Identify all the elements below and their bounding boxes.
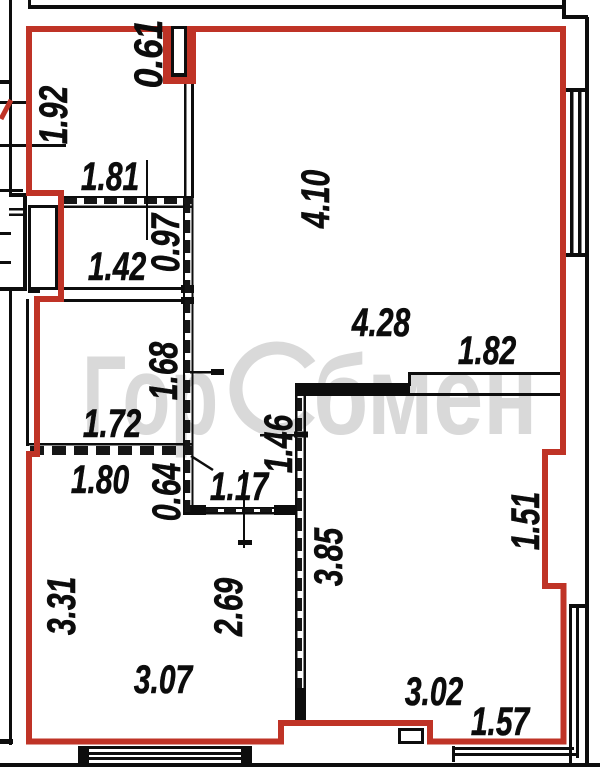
svg-text:2.69: 2.69 — [207, 578, 251, 638]
svg-text:1.17: 1.17 — [210, 465, 270, 509]
svg-text:4.10: 4.10 — [294, 170, 338, 230]
svg-text:1.72: 1.72 — [83, 402, 142, 446]
svg-text:0.61: 0.61 — [126, 20, 171, 88]
svg-text:3.31: 3.31 — [40, 577, 84, 635]
svg-text:1.92: 1.92 — [32, 86, 76, 145]
svg-text:1.82: 1.82 — [458, 329, 517, 373]
svg-text:3.02: 3.02 — [405, 670, 464, 714]
svg-text:1.57: 1.57 — [471, 700, 531, 744]
svg-text:0.97: 0.97 — [144, 212, 188, 272]
svg-text:4.28: 4.28 — [351, 301, 411, 345]
svg-text:1.81: 1.81 — [81, 155, 139, 199]
svg-text:3.85: 3.85 — [307, 527, 351, 587]
svg-text:3.07: 3.07 — [134, 658, 194, 702]
svg-text:0.64: 0.64 — [145, 463, 189, 522]
svg-text:1.51: 1.51 — [504, 492, 548, 550]
svg-text:1.80: 1.80 — [71, 458, 130, 502]
svg-text:1.68: 1.68 — [142, 342, 186, 401]
svg-text:1.42: 1.42 — [88, 245, 147, 289]
